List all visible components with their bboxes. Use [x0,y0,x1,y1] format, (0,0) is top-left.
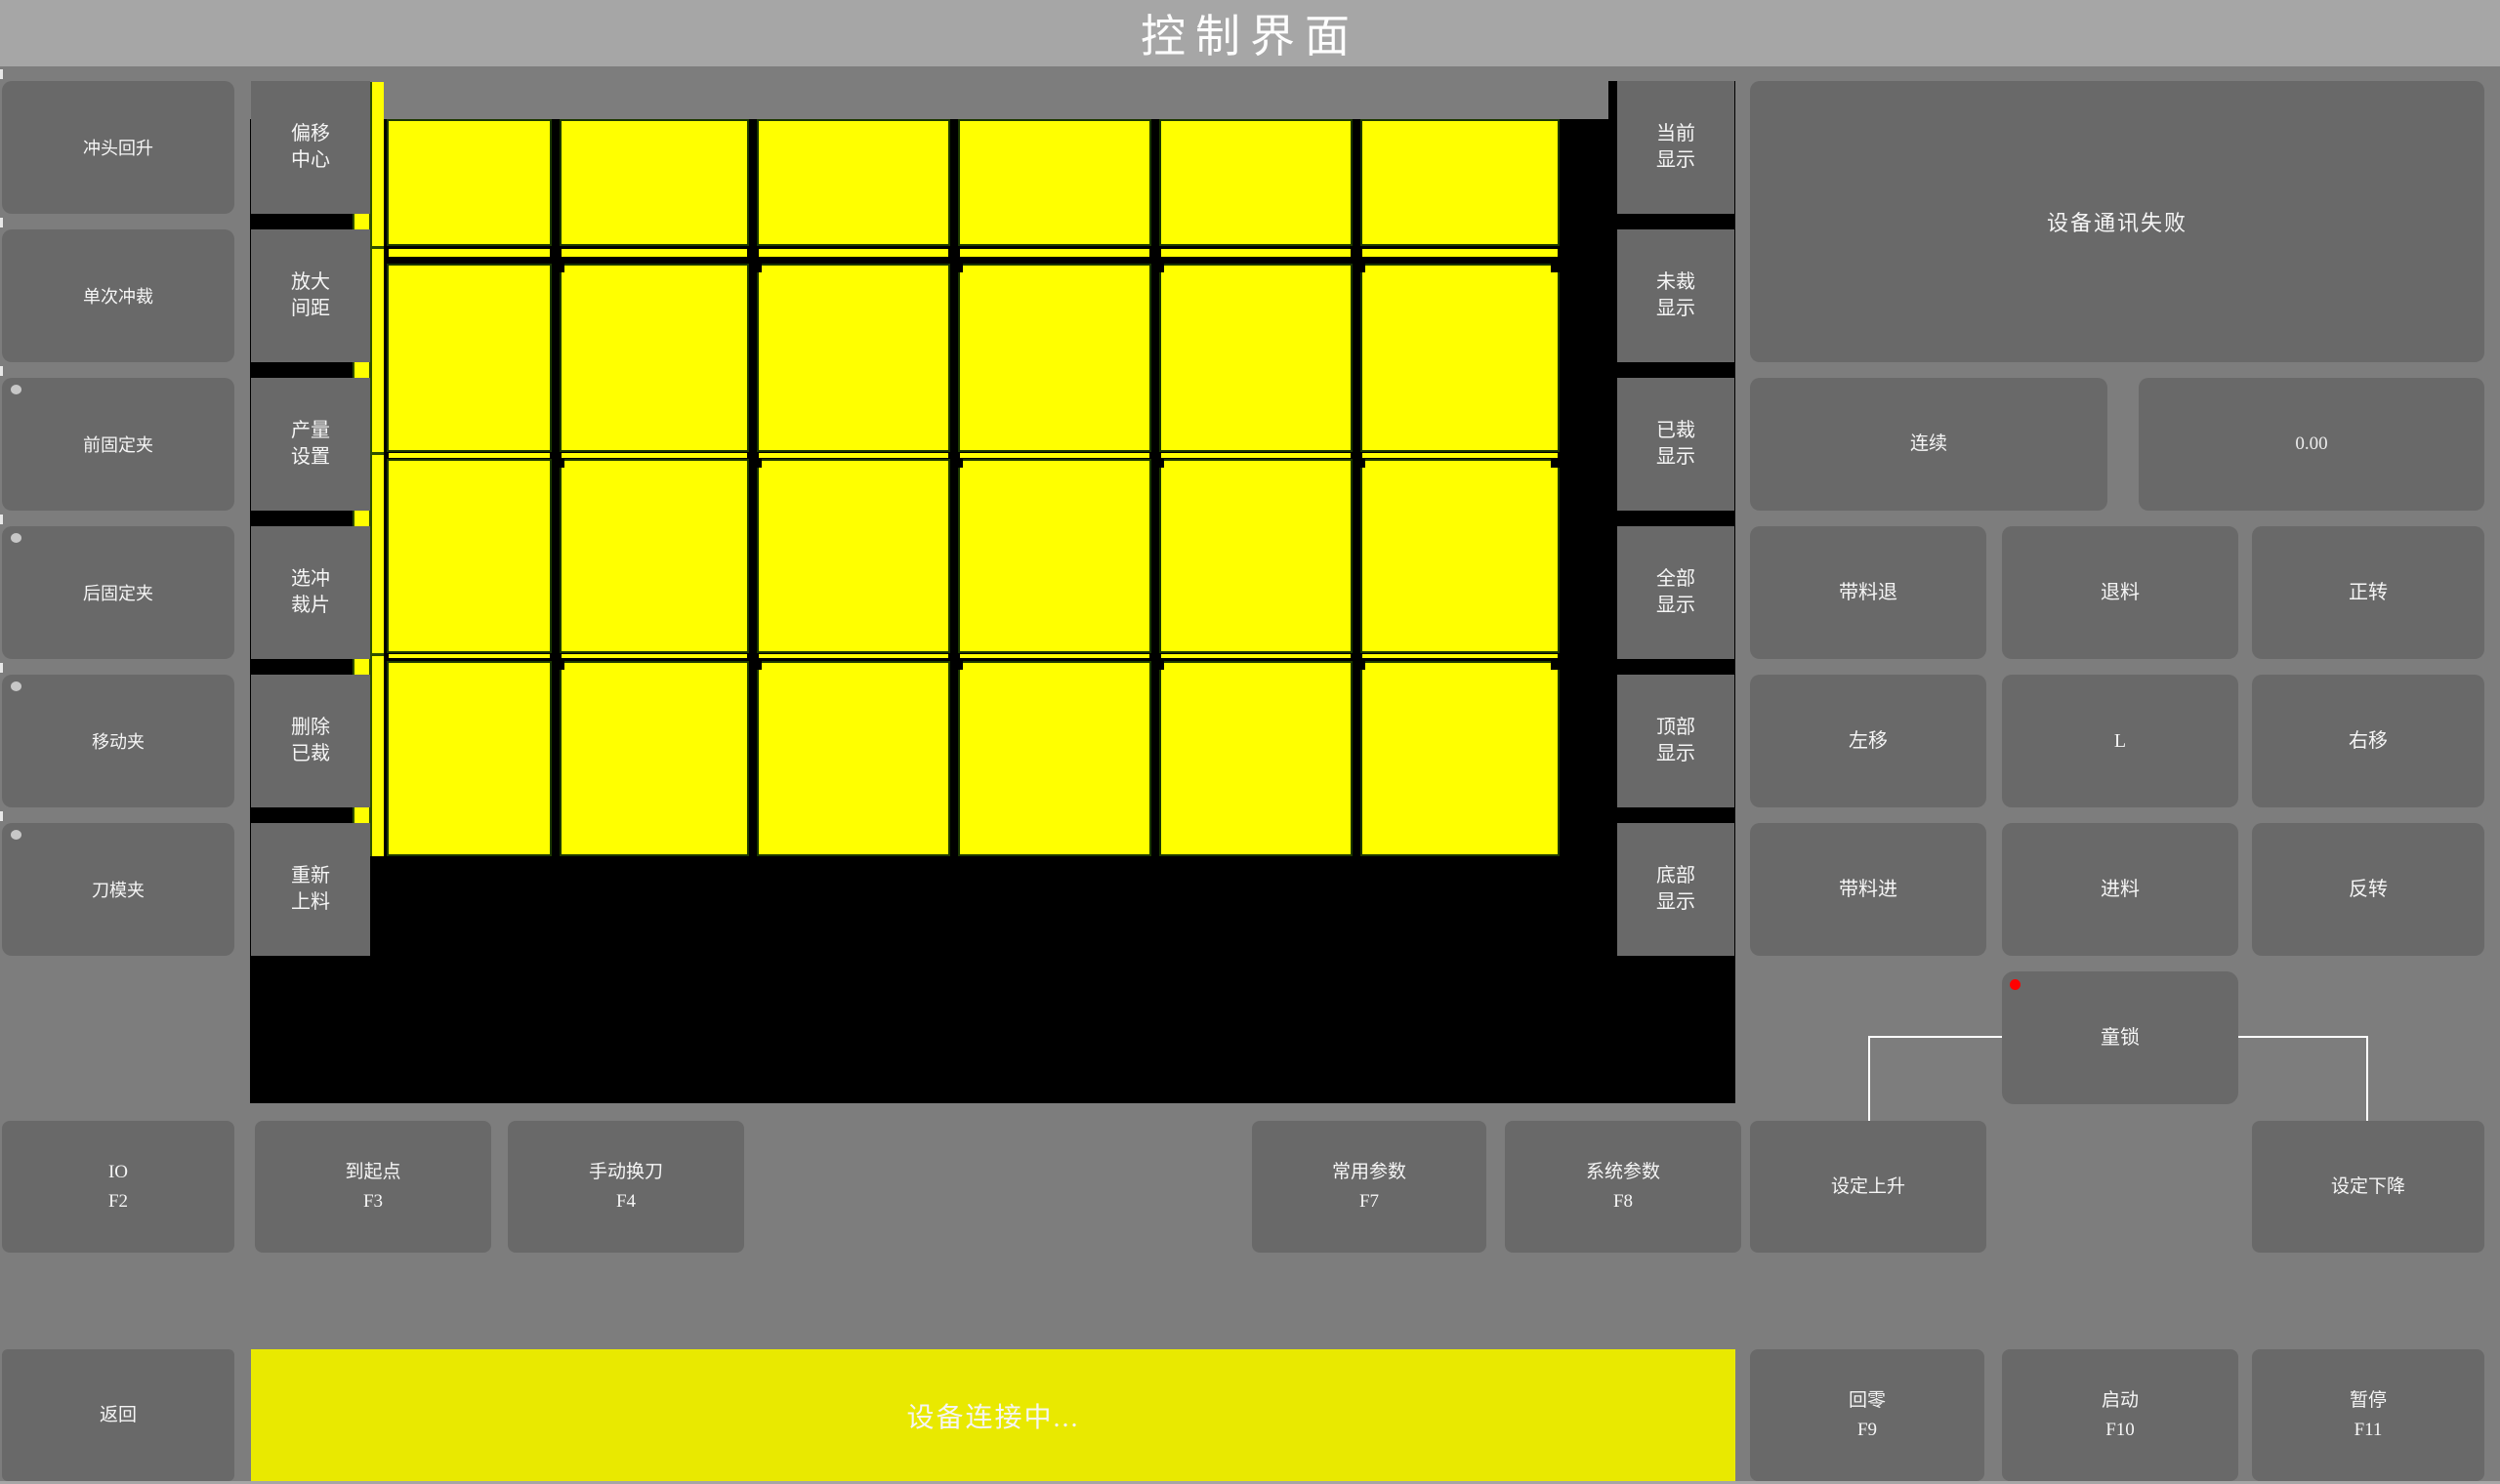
tool-panel-button-2[interactable]: 放大间距 [251,229,370,362]
sheet-piece[interactable] [1360,264,1560,452]
sheet-edge-notch [353,807,369,823]
fn-button-fkey: F2 [108,1187,128,1216]
display-button-line2: 显示 [1656,593,1695,619]
display-mode-button-3[interactable]: 已裁显示 [1617,378,1734,511]
bottom-button-F10[interactable]: 启动F10 [2002,1349,2238,1481]
sheet-piece[interactable] [757,119,950,246]
sheet-piece[interactable] [560,661,749,856]
piece-notch [1154,459,1164,468]
piece-notch [1154,264,1164,272]
left-panel-button-1[interactable]: 冲头回升 [2,81,234,214]
cut-line [1161,654,1351,658]
sheet-piece[interactable] [757,661,950,856]
tool-button-line1: 放大 [291,269,330,296]
sheet-edge-notch [353,214,369,229]
fn-button-设定下降[interactable]: 设定下降 [2252,1121,2484,1253]
bottom-button-fkey: F10 [2105,1416,2135,1445]
jog-button-label: L [2114,728,2126,755]
fn-button-F7[interactable]: 常用参数F7 [1252,1121,1486,1253]
cut-line [759,249,948,257]
left-panel-button-label: 单次冲裁 [83,283,153,309]
display-button-line1: 未裁 [1656,269,1695,296]
row-tick [0,366,3,376]
sheet-strip-divider [369,246,384,249]
sheet-piece[interactable] [1360,459,1560,653]
sheet-piece[interactable] [1159,264,1353,452]
fn-button-fkey: F7 [1359,1187,1379,1216]
cut-line [759,654,948,658]
comm-status-panel: 设备通讯失败 [1750,81,2484,362]
indicator-dot [11,533,21,543]
cut-line [389,249,550,257]
left-panel-button-label: 冲头回升 [83,135,153,160]
sheet-piece[interactable] [387,119,552,246]
piece-notch [555,459,564,468]
sheet-piece[interactable] [958,661,1151,856]
cut-line [562,249,747,257]
cut-line [759,453,948,458]
bottom-button-label: 暂停 [2350,1386,2387,1416]
piece-notch [1355,459,1365,468]
sheet-piece[interactable] [387,661,552,856]
tool-button-line1: 重新 [291,863,330,889]
tool-panel-button-1[interactable]: 偏移中心 [251,81,370,214]
display-button-line2: 显示 [1656,741,1695,767]
sheet-piece[interactable] [958,119,1151,246]
jog-button-label: 带料退 [1839,580,1897,606]
bottom-button-F9[interactable]: 回零F9 [1750,1349,1984,1481]
jog-button-label: 进料 [2101,877,2140,903]
piece-notch [953,661,963,670]
fn-button-F8[interactable]: 系统参数F8 [1505,1121,1741,1253]
sheet-strip-divider [369,653,384,656]
display-button-line1: 顶部 [1656,715,1695,741]
display-button-line1: 已裁 [1656,418,1695,444]
jog-button-4[interactable]: 左移 [1750,675,1986,807]
piece-notch [1154,661,1164,670]
cut-line [1362,453,1558,458]
piece-notch [1551,459,1560,468]
piece-notch [1355,661,1365,670]
sheet-piece[interactable] [757,264,950,452]
indicator-dot [11,830,21,840]
jog-button-5[interactable]: L [2002,675,2238,807]
fn-button-设定上升[interactable]: 设定上升 [1750,1121,1986,1253]
jog-button-label: 右移 [2349,728,2388,755]
piece-notch [752,661,762,670]
jog-button-1[interactable]: 带料退 [1750,526,1986,659]
jog-button-label: 反转 [2349,877,2388,903]
display-mode-button-5[interactable]: 顶部显示 [1617,675,1734,807]
piece-notch [1355,264,1365,272]
page-title: 控制界面 [1141,1,1359,65]
piece-notch [752,264,762,272]
fn-button-fkey: F4 [616,1187,636,1216]
tool-button-line2: 设置 [291,444,330,471]
tool-button-line2: 上料 [291,889,330,916]
row-tick [0,515,3,524]
fn-button-label: 到起点 [345,1158,400,1187]
cut-line [1362,249,1558,257]
mode-button[interactable]: 连续 [1750,378,2107,511]
sheet-piece[interactable] [560,459,749,653]
sheet-piece[interactable] [1159,119,1353,246]
bottom-button-fkey: F9 [1857,1416,1877,1445]
fn-button-F4[interactable]: 手动换刀F4 [508,1121,744,1253]
fn-button-label: 手动换刀 [589,1158,663,1187]
tool-button-line2: 间距 [291,296,330,322]
jog-button-label: 退料 [2101,580,2140,606]
bottom-button-label: 回零 [1849,1386,1886,1416]
cut-line [960,453,1149,458]
comm-status-text: 设备通讯失败 [2047,206,2187,237]
fn-button-fkey: F8 [1613,1187,1633,1216]
cut-line [562,453,747,458]
jog-button-3[interactable]: 正转 [2252,526,2484,659]
sheet-edge-notch [353,511,369,526]
jog-button-6[interactable]: 右移 [2252,675,2484,807]
status-bar: 设备连接中... [251,1349,1735,1481]
status-message: 设备连接中... [906,1396,1079,1435]
tool-panel-button-4[interactable]: 选冲裁片 [251,526,370,659]
cut-line [960,249,1149,257]
tool-button-line1: 偏移 [291,121,330,147]
sheet-edge-notch [353,659,369,675]
left-panel-button-label: 后固定夹 [83,580,153,605]
jog-button-label: 左移 [1849,728,1888,755]
fn-button-F2[interactable]: IOF2 [2,1121,234,1253]
sheet-piece[interactable] [1360,119,1560,246]
piece-notch [953,264,963,272]
title-bar: 控制界面 [0,0,2500,66]
sheet-piece[interactable] [560,119,749,246]
link-line-left [1868,1036,1870,1121]
sheet-piece[interactable] [1159,459,1353,653]
sheet-piece[interactable] [560,264,749,452]
back-button[interactable]: 返回 [2,1349,234,1481]
sheet-piece[interactable] [387,459,552,653]
fn-button-fkey: F3 [363,1187,383,1216]
jog-button-8[interactable]: 进料 [2002,823,2238,956]
fn-button-label: IO [108,1158,128,1187]
left-panel-button-label: 前固定夹 [83,432,153,457]
fn-button-label: 常用参数 [1332,1158,1406,1187]
piece-notch [752,459,762,468]
sheet-piece[interactable] [757,459,950,653]
cut-line [1362,654,1558,658]
value-display[interactable]: 0.00 [2139,378,2484,511]
sheet-piece[interactable] [1360,661,1560,856]
sheet-piece[interactable] [958,264,1151,452]
display-button-line1: 当前 [1656,121,1695,147]
row-tick [0,663,3,673]
bottom-button-F11[interactable]: 暂停F11 [2252,1349,2484,1481]
cut-line [562,654,747,658]
left-panel-button-label: 移动夹 [92,728,145,754]
tool-panel-button-5[interactable]: 删除已裁 [251,675,370,807]
left-panel-button-2[interactable]: 单次冲裁 [2,229,234,362]
cut-line [1161,453,1351,458]
display-button-line2: 显示 [1656,444,1695,471]
sheet-grid[interactable] [387,119,1560,856]
display-button-line2: 显示 [1656,147,1695,174]
cut-line [389,453,550,458]
cut-line [960,654,1149,658]
fn-button-F3[interactable]: 到起点F3 [255,1121,491,1253]
cut-line [389,654,550,658]
cut-line [1161,249,1351,257]
sheet-edge-notch [353,362,369,378]
fn-button-label: 设定下降 [2331,1173,2405,1202]
display-mode-button-1[interactable]: 当前显示 [1617,81,1734,214]
display-button-line1: 底部 [1656,863,1695,889]
jog-button-9[interactable]: 反转 [2252,823,2484,956]
sheet-piece[interactable] [1159,661,1353,856]
jog-button-7[interactable]: 带料进 [1750,823,1986,956]
display-button-line2: 显示 [1656,296,1695,322]
tool-button-line1: 产量 [291,418,330,444]
indicator-dot [11,385,21,394]
piece-notch [555,264,564,272]
child-lock-button[interactable]: 童锁 [2002,971,2238,1104]
row-tick [0,69,3,79]
tool-button-line1: 删除 [291,715,330,741]
row-tick [0,811,3,821]
indicator-dot [11,681,21,691]
tool-panel-button-3[interactable]: 产量设置 [251,378,370,511]
display-mode-button-2[interactable]: 未裁显示 [1617,229,1734,362]
left-panel-button-5[interactable]: 移动夹 [2,675,234,807]
display-button-line1: 全部 [1656,566,1695,593]
tool-button-line2: 已裁 [291,741,330,767]
sheet-piece[interactable] [387,264,552,452]
left-panel-button-6[interactable]: 刀模夹 [2,823,234,956]
child-lock-indicator [2010,979,2021,990]
tool-button-line2: 中心 [291,147,330,174]
sheet-strip-divider [369,452,384,455]
jog-button-2[interactable]: 退料 [2002,526,2238,659]
display-mode-button-6[interactable]: 底部显示 [1617,823,1734,956]
link-line-right [2366,1036,2368,1121]
bottom-button-label: 启动 [2102,1386,2139,1416]
piece-notch [1551,264,1560,272]
sheet-piece[interactable] [958,459,1151,653]
display-mode-button-4[interactable]: 全部显示 [1617,526,1734,659]
piece-notch [555,661,564,670]
fn-button-label: 设定上升 [1831,1173,1905,1202]
display-button-line2: 显示 [1656,889,1695,916]
tool-button-line2: 裁片 [291,593,330,619]
left-panel-button-3[interactable]: 前固定夹 [2,378,234,511]
fn-button-label: 系统参数 [1586,1158,1660,1187]
jog-button-label: 带料进 [1839,877,1897,903]
jog-button-label: 正转 [2349,580,2388,606]
piece-notch [953,459,963,468]
bottom-button-fkey: F11 [2354,1416,2383,1445]
left-panel-button-label: 刀模夹 [92,877,145,902]
row-tick [0,218,3,227]
tool-panel-button-6[interactable]: 重新上料 [251,823,370,956]
tool-button-line1: 选冲 [291,566,330,593]
piece-notch [1551,661,1560,670]
left-panel-button-4[interactable]: 后固定夹 [2,526,234,659]
